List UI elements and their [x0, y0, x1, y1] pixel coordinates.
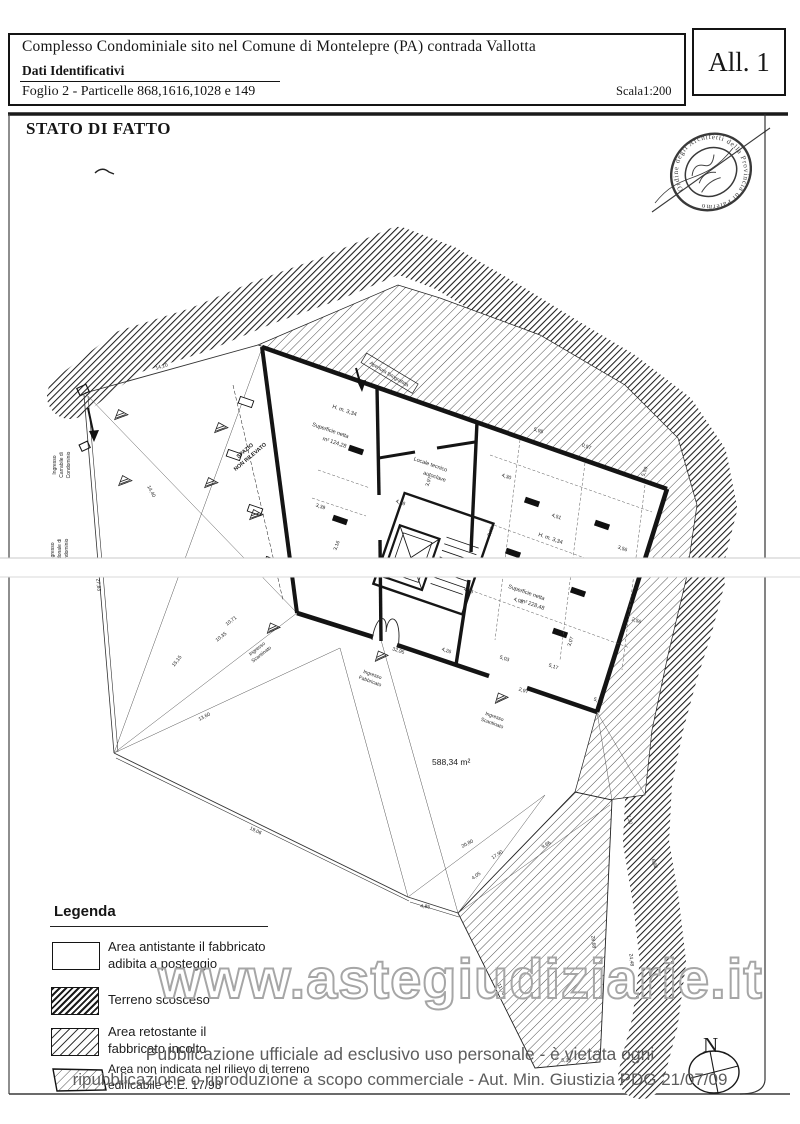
dim: 27,83: [94, 578, 101, 591]
dim: 4,28: [395, 499, 406, 508]
total-area-label: 588,34 m²: [432, 757, 470, 767]
dim: 15,15: [171, 654, 184, 668]
footer-line1: Pubblicazione ufficiale ad esclusivo uso…: [0, 1044, 800, 1065]
dim: 19,06: [248, 826, 262, 837]
sheet-info: Foglio 2 - Particelle 868,1616,1028 e 14…: [22, 84, 255, 100]
attachment-box: All. 1: [692, 28, 786, 96]
carrabile-l2: Carrabile di: [59, 452, 65, 478]
door-arcs: [372, 619, 399, 648]
slope-glyphs: [112, 407, 508, 703]
dim: 10,35: [215, 631, 229, 644]
dim: 4,51: [551, 513, 562, 522]
dim: 3,16: [333, 540, 342, 551]
entrance-labels: Ingresso Carrabile di Condominio Ingress…: [50, 451, 507, 730]
scale-label: Scala1:200: [616, 84, 672, 99]
scan-seam: [0, 558, 800, 577]
room1-height: H. m. 3,34: [331, 404, 357, 418]
legend-label-incolto-l1: Area retostante il: [108, 1024, 206, 1041]
locale-line1: Locale tecnico: [413, 456, 448, 473]
attachment-label: All. 1: [708, 47, 770, 78]
dim: 4,30: [501, 473, 512, 482]
dim: 3,92: [487, 526, 496, 537]
dim: 3,56: [617, 545, 628, 554]
legend-rule: [50, 926, 268, 927]
scanned-plan-page: Apertura fotografata SPAZIO NON RILEVATO…: [0, 0, 800, 1124]
dim: 10,71: [225, 615, 239, 628]
watermark: www.astegiudiziarie.it: [158, 946, 763, 1011]
dim: 14,40: [145, 485, 156, 499]
legend-swatch-posteggio: [52, 942, 100, 970]
dim: 4,05: [471, 871, 483, 882]
dim: 4,85: [420, 904, 431, 911]
architects-stamp: Ordine degli Architetti della Provincia …: [652, 117, 770, 227]
dim: 20,80: [461, 838, 475, 849]
carrabile-l3: Condominio: [66, 451, 72, 478]
carrabile-l1: Ingresso: [52, 455, 58, 474]
area-incolto-bottom: [458, 792, 612, 1068]
dim: 5,03: [499, 655, 510, 664]
legend-title: Legenda: [54, 903, 116, 920]
room2-height: H. m. 3,34: [537, 532, 563, 546]
dim: 3,07: [567, 636, 576, 647]
drawing-title: STATO DI FATTO: [26, 119, 171, 139]
document-title: Complesso Condominiale sito nel Comune d…: [22, 38, 536, 56]
scan-mark: [95, 169, 114, 174]
section-underline: [20, 81, 280, 82]
dim: 5,17: [548, 663, 559, 672]
stair-elevator-core: [373, 493, 493, 614]
dim: 3,39: [315, 503, 326, 512]
footer-line2: ripubblicazione o riproduzione a scopo c…: [0, 1070, 800, 1090]
legend-swatch-scosceso: [51, 987, 99, 1015]
section-label: Dati Identificativi: [22, 63, 124, 79]
dim: 4,26: [441, 647, 452, 656]
